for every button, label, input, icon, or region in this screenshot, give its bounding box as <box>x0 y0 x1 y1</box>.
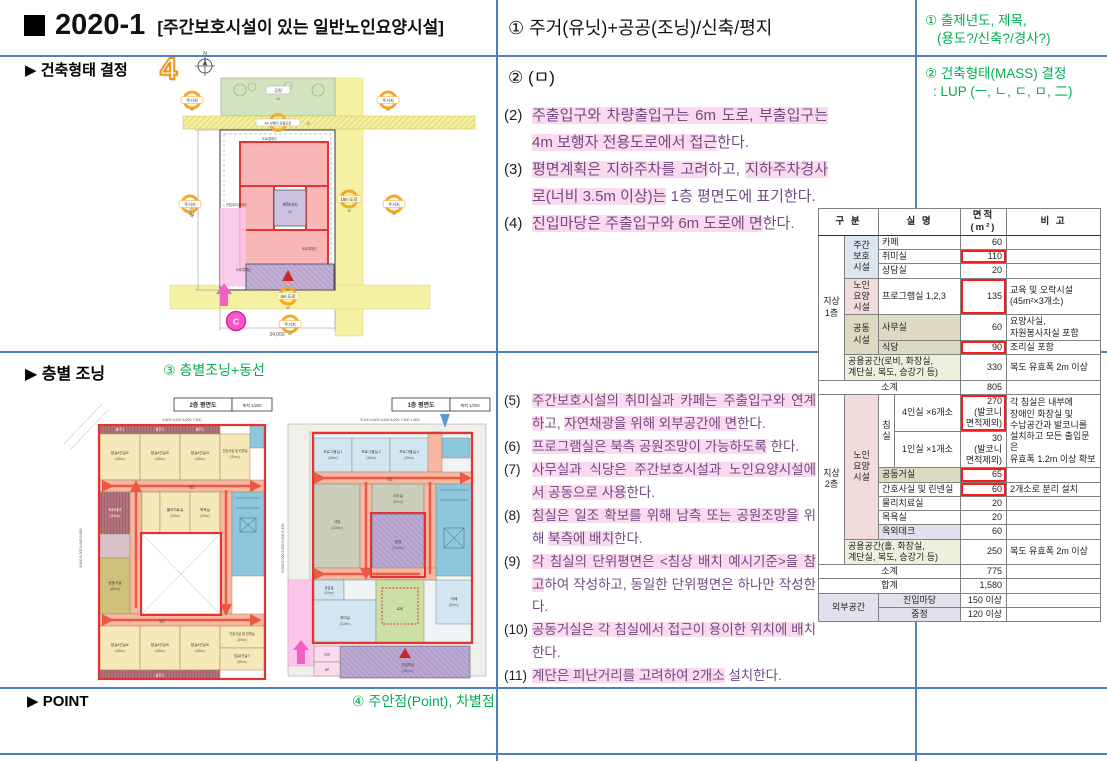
svg-text:2층 평면도: 2층 평면도 <box>189 401 217 409</box>
svg-text:프로그램실 1: 프로그램실 1 <box>323 449 343 454</box>
svg-text:공동거실: 공동거실 <box>108 580 121 585</box>
mass-type-answer: ② (ㅁ) <box>508 63 555 88</box>
note-item: (9)각 침실의 단위평면은 <침상 배치 예시기준>을 참고하여 작성하고, … <box>504 551 816 620</box>
svg-text:(45m²): (45m²) <box>155 457 164 461</box>
table-cell: 60 <box>961 482 1007 496</box>
table-cell: 복도 유효폭 2m 이상 <box>1007 539 1101 565</box>
note-item: (10)공동거실은 각 침실에서 접근이 용이한 위치에 배치한다. <box>504 619 816 665</box>
svg-text:카페: 카페 <box>451 596 458 601</box>
divider-horizontal-4 <box>0 753 1107 755</box>
svg-text:주거지: 주거지 <box>184 201 196 208</box>
note-number: (5) <box>504 390 532 413</box>
adjacent-boundary-label: 인접대지경계선 <box>226 202 247 207</box>
table-cell: 면적(m²) <box>961 209 1007 236</box>
svg-text:(45m²): (45m²) <box>404 456 413 460</box>
table-cell: 60 <box>961 235 1007 249</box>
table-cell: 간호사실 및 린넨실 <box>879 482 961 496</box>
note-item: (7)사무실과 식당은 주간보호시설과 노인요양시설에서 공동으로 사용한다. <box>504 459 816 505</box>
note-text: 프로그램실은 북측 공원조망이 가능하도록 한다. <box>532 436 816 459</box>
svg-text:진입마당: 진입마당 <box>401 662 415 667</box>
svg-text:침실4인실⑤: 침실4인실⑤ <box>151 642 170 647</box>
note-number: (2) <box>504 102 532 129</box>
note-text: 침실은 일조 확보를 위해 남측 또는 공원조망을 위해 북측에 배치한다. <box>532 505 816 551</box>
table-cell: 중정 <box>879 607 961 621</box>
svg-text:침실4인실④: 침실4인실④ <box>111 642 129 647</box>
svg-text:물리치료실: 물리치료실 <box>167 507 184 512</box>
table-cell: 소계 <box>819 380 961 394</box>
note-number: (7) <box>504 459 532 482</box>
note-item: (3)평면계획은 지하주차를 고려하고, 지하주차경사로(너비 3.5m 이상)… <box>504 156 828 210</box>
svg-text:상담실: 상담실 <box>325 585 334 590</box>
note-text: 공동거실은 각 침실에서 접근이 용이한 위치에 배치한다. <box>532 619 816 665</box>
note-item: (6)프로그램실은 북측 공원조망이 가능하도록 한다. <box>504 436 816 459</box>
svg-text:±0: ±0 <box>347 209 351 213</box>
site-plan: 48,000 34,000 계획대지 ±0 도로경계선 인접대지경계선 도로경계… <box>170 78 485 350</box>
table-cell: 카페 <box>879 235 961 249</box>
table-cell: 20 <box>961 496 1007 510</box>
table-cell <box>1007 607 1101 621</box>
table-cell <box>1007 380 1101 394</box>
table-cell: 목욕실 <box>879 511 961 525</box>
table-cell: 330 <box>961 355 1007 381</box>
note-item: (5)주간보호시설의 취미실과 카페는 주출입구와 연계하고, 자연채광을 위해… <box>504 390 816 436</box>
svg-text:(30m²): (30m²) <box>237 638 246 642</box>
note-number: (3) <box>504 156 532 183</box>
svg-text:±0: ±0 <box>188 212 192 216</box>
svg-text:±0: ±0 <box>306 122 310 126</box>
program-table: 구 분실 명면적(m²)비 고지상 1층주간 보호 시설카페60취미실110상담… <box>818 208 1101 622</box>
svg-text:발코니: 발코니 <box>116 427 125 432</box>
svg-text:±0: ±0 <box>288 210 292 214</box>
table-cell: 지상 2층 <box>819 394 845 564</box>
table-cell: 옥외데크 <box>879 525 961 539</box>
table-cell: 65 <box>961 468 1007 482</box>
table-cell: 150 이상 <box>961 593 1007 607</box>
plan-title-2f: 2층 평면도 축척 1/200 <box>174 398 272 411</box>
svg-text:복도: 복도 <box>387 477 393 482</box>
table-cell <box>1007 264 1101 278</box>
table-cell: 60 <box>961 525 1007 539</box>
table-cell: 주간 보호 시설 <box>845 235 879 278</box>
pink-zone <box>220 208 246 286</box>
table-cell: 소계 <box>819 565 961 579</box>
table-cell: 775 <box>961 565 1007 579</box>
exam-year: 2020-1 <box>55 9 145 42</box>
svg-text:로비: 로비 <box>397 606 404 611</box>
svg-text:침실4인실①: 침실4인실① <box>111 450 129 455</box>
svg-text:±0: ±0 <box>190 108 194 112</box>
svg-text:발코니: 발코니 <box>196 427 205 432</box>
table-cell: 30 (발코니 면적제외) <box>961 431 1007 468</box>
svg-text:±0: ±0 <box>286 306 290 310</box>
svg-text:(30m²): (30m²) <box>237 660 246 664</box>
table-cell: 요양사실, 자원봉사자실 포함 <box>1007 315 1101 341</box>
table-cell <box>1007 235 1101 249</box>
table-cell: 각 침실은 내부에 장애인 화장실 및 수납공간과 발코니를 설치하고 모든 출… <box>1007 394 1101 468</box>
table-cell: 사무실 <box>879 315 961 341</box>
table-cell: 공용공간(홀, 화장실, 계단실, 복도, 승강기 등) <box>845 539 961 565</box>
pedestrian-road-4m <box>183 116 475 129</box>
table-cell: 4인실 ×6개소 <box>895 394 961 431</box>
note-number: (11) <box>504 665 532 688</box>
dims-left-2f: 6,600 6,000 6,600 6,600 <box>79 529 83 568</box>
svg-text:(30m²): (30m²) <box>230 455 239 459</box>
table-cell: 공동거실 <box>879 468 961 482</box>
program-area-table: 구 분실 명면적(m²)비 고지상 1층주간 보호 시설카페60취미실110상담… <box>818 208 1101 622</box>
section-heading-mass: ▶ 건축형태 결정 <box>25 59 128 80</box>
svg-text:4m 보행자 전용도로: 4m 보행자 전용도로 <box>265 121 292 126</box>
svg-text:(120m²): (120m²) <box>331 526 342 530</box>
svg-text:(45m²): (45m²) <box>115 457 124 461</box>
table-cell: 250 <box>961 539 1007 565</box>
svg-text:(150m²): (150m²) <box>402 669 413 673</box>
svg-text:축척 1/200: 축척 1/200 <box>460 402 480 409</box>
svg-text:(20m²): (20m²) <box>200 514 209 518</box>
svg-text:(60m²): (60m²) <box>110 514 119 518</box>
dims-top-1f: 5,200 6,600 6,600 6,600 7,500 1,500 <box>361 418 420 422</box>
dims-left-1f: 6,600 6,000 6,600 6,600 6,400 <box>281 524 285 573</box>
svg-text:목욕실: 목욕실 <box>200 507 210 512</box>
note-number: (9) <box>504 551 532 574</box>
floor-plan-1f: 1층 평면도 축척 1/200 5,200 6,600 6,600 6,600 … <box>280 398 495 688</box>
svg-text:(20m²): (20m²) <box>324 591 333 595</box>
green-note-2-line1: ② 건축형태(MASS) 결정 <box>925 65 1072 83</box>
table-cell: 2개소로 분리 설치 <box>1007 482 1101 496</box>
svg-text:HP: HP <box>325 668 329 672</box>
green-note-1-line2: (용도?/신축?/경사?) <box>925 30 1051 48</box>
green-note-1: ① 출제년도, 제목, (용도?/신축?/경사?) <box>925 12 1051 48</box>
table-cell: 노인 요양 시설 <box>845 278 879 315</box>
table-cell: 805 <box>961 380 1007 394</box>
table-cell: 지상 1층 <box>819 235 845 380</box>
table-cell <box>1007 579 1101 593</box>
svg-text:축척 1/200: 축척 1/200 <box>242 402 262 409</box>
table-cell: 20 <box>961 511 1007 525</box>
svg-text:도로경계선: 도로경계선 <box>236 267 251 272</box>
note-text: 각 침실의 단위평면은 <침상 배치 예시기준>을 참고하여 작성하고, 동일한… <box>532 551 816 620</box>
svg-text:주거지: 주거지 <box>186 97 198 104</box>
divider-vertical-1 <box>496 0 498 761</box>
notes-section-3: (5)주간보호시설의 취미실과 카페는 주출입구와 연계하고, 자연채광을 위해… <box>504 390 816 688</box>
table-cell <box>1007 593 1101 607</box>
site-dim-width: 34,000 <box>269 332 285 338</box>
table-cell: 공용공간(로비, 화장실, 계단실, 복도, 승강기 등) <box>845 355 961 381</box>
table-cell <box>1007 511 1101 525</box>
table-cell: 물리치료실 <box>879 496 961 510</box>
svg-text:(45m²): (45m²) <box>195 649 204 653</box>
rooms-1f <box>288 432 472 678</box>
svg-text:(45m²): (45m²) <box>155 649 164 653</box>
table-cell: 120 이상 <box>961 607 1007 621</box>
table-cell <box>1007 250 1101 264</box>
svg-text:주차: 주차 <box>324 652 330 657</box>
svg-text:(45m²): (45m²) <box>195 457 204 461</box>
svg-text:(45m²): (45m²) <box>366 456 375 460</box>
green-note-4: ④ 주안점(Point), 차별점 <box>352 692 495 711</box>
table-cell <box>1007 468 1101 482</box>
svg-text:C: C <box>233 317 239 327</box>
svg-text:발코니: 발코니 <box>156 427 165 432</box>
svg-text:식당: 식당 <box>334 519 341 524</box>
table-cell <box>1007 525 1101 539</box>
svg-text:프로그램실 2: 프로그램실 2 <box>361 449 381 454</box>
svg-text:침실4인실③: 침실4인실③ <box>191 450 209 455</box>
table-cell: 60 <box>961 315 1007 341</box>
note-item: (4)진입마당은 주출입구와 6m 도로에 면한다. <box>504 210 828 237</box>
svg-text:1층 평면도: 1층 평면도 <box>407 401 435 409</box>
step-number-badge: 4 <box>160 51 177 87</box>
table-cell: 110 <box>961 250 1007 264</box>
svg-text:±0: ±0 <box>392 212 396 216</box>
notes-section-2: (2)주출입구와 차량출입구는 6m 도로, 부출입구는 4m 보행자 전용도로… <box>504 102 828 237</box>
svg-text:±0: ±0 <box>288 332 292 336</box>
table-cell: 교육 및 오락시설 (45m²×3개소) <box>1007 278 1101 315</box>
table-cell: 비 고 <box>1007 209 1101 236</box>
black-square-bullet <box>24 15 45 36</box>
table-cell: 1인실 ×1개소 <box>895 431 961 468</box>
green-note-3: ③ 층별조닝+동선 <box>163 361 265 380</box>
note-text: 진입마당은 주출입구와 6m 도로에 면한다. <box>532 210 828 237</box>
table-cell: 침 실 <box>879 394 895 468</box>
road-boundary-label: 도로경계선 <box>262 136 277 141</box>
svg-text:(60m²): (60m²) <box>393 500 402 504</box>
problem-type-summary: ① 주거(유닛)+공공(조닝)/신축/평지 <box>508 14 772 40</box>
green-note-2: ② 건축형태(MASS) 결정 : LUP (ㅡ, ㄴ, ㄷ, ㅁ, 二) <box>925 65 1072 101</box>
svg-text:주거지: 주거지 <box>382 97 394 104</box>
note-text: 사무실과 식당은 주간보호시설과 노인요양시설에서 공동으로 사용한다. <box>532 459 816 505</box>
svg-text:사무실: 사무실 <box>393 493 403 498</box>
plan-title-1f: 1층 평면도 축척 1/200 <box>392 398 490 411</box>
svg-text:±0: ±0 <box>276 97 280 101</box>
svg-text:(20m²): (20m²) <box>170 514 179 518</box>
plan-site-core <box>274 190 306 226</box>
note-item: (2)주출입구와 차량출입구는 6m 도로, 부출입구는 4m 보행자 전용도로… <box>504 102 828 156</box>
table-cell: 1,580 <box>961 579 1007 593</box>
table-cell: 식당 <box>879 340 961 354</box>
table-cell <box>1007 565 1101 579</box>
table-cell: 실 명 <box>879 209 961 236</box>
table-cell: 진입마당 <box>879 593 961 607</box>
svg-text:(45m²): (45m²) <box>328 456 337 460</box>
table-cell: 공동 시설 <box>845 315 879 355</box>
table-cell: 20 <box>961 264 1007 278</box>
north-compass-icon: N <box>193 49 217 79</box>
section-heading-zoning: ▶ 층별 조닝 <box>25 360 105 384</box>
note-text: 주간보호시설의 취미실과 카페는 주출입구와 연계하고, 자연채광을 위해 외부… <box>532 390 816 436</box>
green-note-1-line1: ① 출제년도, 제목, <box>925 12 1051 30</box>
site-label: 계획대지 <box>282 201 298 208</box>
table-cell: 노인 요양 시설 <box>845 394 879 539</box>
title-bar: 2020-1 [주간보호시설이 있는 일반노인요양시설] <box>24 9 444 42</box>
floor-plan-2f: 2층 평면도 축척 1/200 6,600 6,600 6,600 7,500 … <box>62 398 277 688</box>
exam-subject: [주간보호시설이 있는 일반노인요양시설] <box>157 13 444 38</box>
note-number: (4) <box>504 210 532 237</box>
svg-text:취미실: 취미실 <box>340 615 350 620</box>
svg-text:(120m²): (120m²) <box>392 546 403 550</box>
table-cell: 구 분 <box>819 209 879 236</box>
svg-text:복도: 복도 <box>189 485 195 490</box>
table-cell: 270 (발코니 면적제외) <box>961 394 1007 431</box>
c-marker: C <box>227 312 246 331</box>
table-cell: 외부공간 <box>819 593 879 622</box>
svg-text:중정: 중정 <box>395 539 402 544</box>
table-cell: 프로그램실 1,2,3 <box>879 278 961 315</box>
svg-text:±0: ±0 <box>386 108 390 112</box>
svg-text:(110m²): (110m²) <box>340 622 351 626</box>
svg-text:간호사실 및 린넨실: 간호사실 및 린넨실 <box>229 631 254 636</box>
note-number: (10) <box>504 619 532 642</box>
note-item: (8)침실은 일조 확보를 위해 남측 또는 공원조망을 위해 북측에 배치한다… <box>504 505 816 551</box>
svg-text:간호사실 및 린넨실: 간호사실 및 린넨실 <box>222 448 247 453</box>
svg-text:(45m²): (45m²) <box>115 649 124 653</box>
svg-text:침실4인실⑥: 침실4인실⑥ <box>191 642 210 647</box>
section-heading-point: ▶ POINT <box>27 692 89 710</box>
table-cell: 취미실 <box>879 250 961 264</box>
note-text: 계단은 피난거리를 고려하여 2개소 설치한다. <box>532 665 816 688</box>
svg-text:침실4인실②: 침실4인실② <box>151 450 169 455</box>
note-number: (6) <box>504 436 532 459</box>
svg-text:복도: 복도 <box>159 619 165 624</box>
svg-text:(65m²): (65m²) <box>110 587 119 591</box>
svg-text:옥외데크: 옥외데크 <box>108 507 122 512</box>
table-cell: 135 <box>961 278 1007 315</box>
svg-text:주거지: 주거지 <box>284 321 296 328</box>
note-text: 주출입구와 차량출입구는 6m 도로, 부출입구는 4m 보행자 전용도로에서 … <box>532 102 828 156</box>
svg-text:주거지: 주거지 <box>388 201 400 208</box>
table-cell: 상담실 <box>879 264 961 278</box>
svg-text:도로경계선: 도로경계선 <box>302 246 317 251</box>
note-text: 평면계획은 지하주차를 고려하고, 지하주차경사로(너비 3.5m 이상)는 1… <box>532 156 828 210</box>
svg-text:프로그램실 3: 프로그램실 3 <box>399 449 419 454</box>
svg-text:침실1인실①: 침실1인실① <box>234 653 251 658</box>
dims-top-2f: 6,600 6,600 6,600 7,500 <box>163 418 202 422</box>
table-cell: 조리실 포함 <box>1007 340 1101 354</box>
svg-text:(60m²): (60m²) <box>449 603 458 607</box>
table-cell: 합계 <box>819 579 961 593</box>
note-number: (8) <box>504 505 532 528</box>
svg-text:10m 도로: 10m 도로 <box>340 197 357 202</box>
table-cell <box>1007 496 1101 510</box>
note-item: (11)계단은 피난거리를 고려하여 2개소 설치한다. <box>504 665 816 688</box>
green-note-2-line2: : LUP (ㅡ, ㄴ, ㄷ, ㅁ, 二) <box>925 83 1072 101</box>
table-cell: 복도 유효폭 2m 이상 <box>1007 355 1101 381</box>
table-cell: 90 <box>961 340 1007 354</box>
svg-text:발코니: 발코니 <box>156 673 165 678</box>
svg-text:공원: 공원 <box>274 87 282 93</box>
svg-text:6m 도로: 6m 도로 <box>281 294 296 299</box>
